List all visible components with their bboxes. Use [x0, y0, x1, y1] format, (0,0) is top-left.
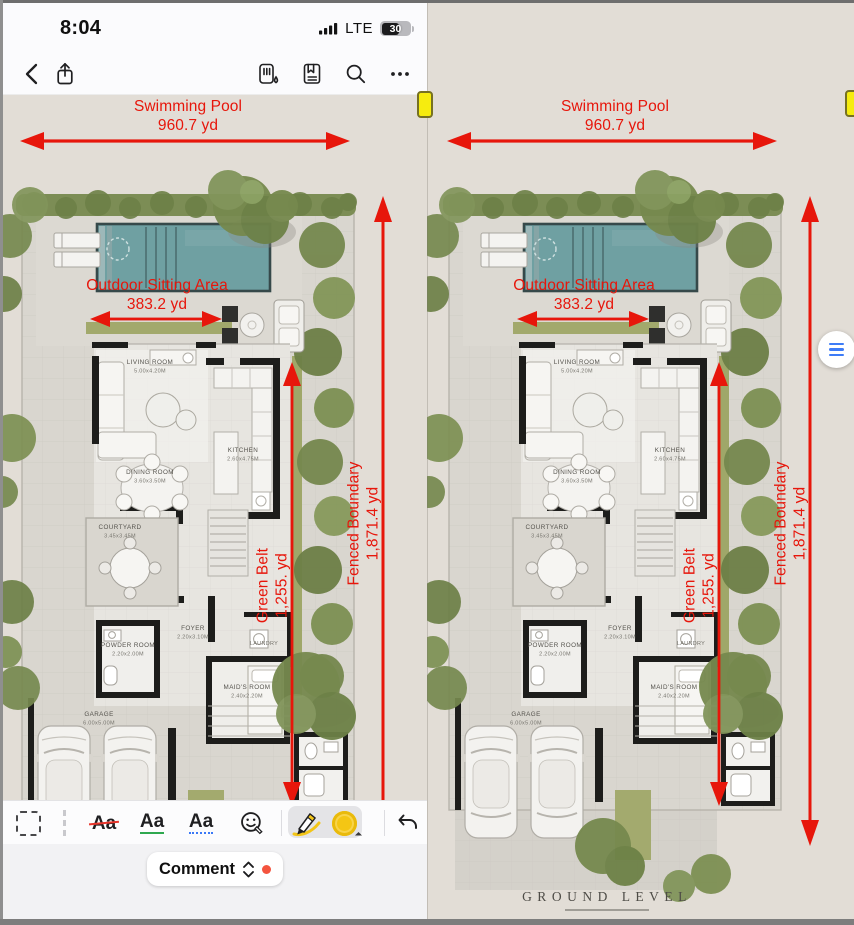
markup-toolbar: Aa Aa Aa	[0, 800, 427, 844]
menu-fab[interactable]	[818, 331, 854, 368]
annotation-value: 1,871.4 yd	[791, 429, 810, 619]
annotation-fenced-boundary: Fenced Boundary 1,871.4 yd	[773, 429, 810, 619]
text-underline-icon: Aa	[140, 812, 164, 834]
ruler-tool-button[interactable]	[46, 805, 82, 841]
text-dotted-icon: Aa	[189, 812, 213, 834]
annotation-outdoor-sitting[interactable]: Outdoor Sitting Area 383.2 yd	[17, 277, 297, 314]
hamburger-line	[829, 348, 844, 350]
annotation-label: Outdoor Sitting Area	[17, 277, 297, 296]
hamburger-line	[829, 354, 844, 356]
comment-bar-area: Comment	[0, 844, 427, 919]
annotation-swimming-pool[interactable]: Swimming Pool 960.7 yd	[38, 98, 338, 135]
comment-button[interactable]: Comment	[147, 852, 283, 886]
text-underline-button[interactable]: Aa	[134, 805, 170, 841]
share-icon	[55, 62, 75, 86]
annotation-value: 960.7 yd	[38, 117, 338, 136]
color-swatch-button[interactable]	[326, 805, 362, 841]
text-strike-icon: Aa	[92, 814, 116, 833]
annotation-outdoor-sitting: Outdoor Sitting Area 383.2 yd	[444, 277, 724, 314]
highlighter-tool-button[interactable]	[289, 805, 325, 841]
annotation-label: Green Belt	[682, 511, 701, 661]
selected-color-swatch	[332, 811, 357, 836]
bookmark-list-icon	[301, 62, 324, 86]
notification-dot	[262, 865, 271, 874]
annotation-fenced-boundary[interactable]: Fenced Boundary 1,871.4 yd	[346, 429, 383, 619]
bookmark-flag[interactable]	[417, 91, 433, 118]
nav-right-cluster	[253, 59, 415, 89]
plan-level-title: GROUND LEVEL	[487, 889, 727, 911]
annotation-green-belt: Green Belt 1,255. yd	[682, 511, 719, 661]
bookmark-flag[interactable]	[845, 90, 854, 117]
back-button[interactable]	[16, 59, 46, 89]
selection-tool-button[interactable]	[10, 805, 46, 841]
network-type-label: LTE	[345, 20, 373, 37]
search-button[interactable]	[341, 59, 371, 89]
battery-icon: 30	[380, 21, 411, 36]
markup-editor-pane: Swimming Pool 960.7 yd Outdoor Sitting A…	[0, 0, 427, 925]
ellipsis-icon	[389, 63, 411, 85]
annotation-value: 1,255. yd	[700, 511, 719, 661]
toolbar-divider	[281, 810, 282, 836]
annotation-list-button[interactable]	[297, 59, 327, 89]
toolbar-divider	[384, 810, 385, 836]
level-underline	[565, 909, 649, 911]
text-strikethrough-button[interactable]: Aa	[86, 805, 122, 841]
markup-tool-button[interactable]	[253, 59, 283, 89]
annotation-label: Swimming Pool	[465, 98, 765, 117]
nav-bar	[0, 52, 427, 95]
battery-percent: 30	[380, 21, 411, 36]
annotation-value: 383.2 yd	[444, 296, 724, 315]
annotation-label: Swimming Pool	[38, 98, 338, 117]
smiley-pencil-icon	[239, 810, 265, 836]
annotation-value: 1,255. yd	[273, 511, 292, 661]
frame-edge	[0, 919, 854, 925]
markup-document-icon	[257, 62, 280, 86]
emoji-annotation-button[interactable]	[234, 805, 270, 841]
annotation-value: 1,871.4 yd	[364, 429, 383, 619]
dashed-line-icon	[63, 810, 66, 836]
undo-icon	[395, 811, 420, 835]
frame-edge	[0, 0, 854, 3]
status-indicators: LTE 30	[319, 20, 411, 37]
annotation-label: Green Belt	[255, 511, 274, 661]
annotation-label: Outdoor Sitting Area	[444, 277, 724, 296]
level-label: GROUND LEVEL	[487, 889, 727, 905]
dashed-selection-icon	[16, 811, 41, 836]
undo-button[interactable]	[389, 805, 425, 841]
search-icon	[345, 63, 367, 85]
more-button[interactable]	[385, 59, 415, 89]
screenshot-root: Swimming Pool 960.7 yd Outdoor Sitting A…	[0, 0, 854, 925]
highlighter-pen-icon	[292, 810, 322, 837]
annotation-value: 383.2 yd	[17, 296, 297, 315]
annotation-value: 960.7 yd	[465, 117, 765, 136]
frame-edge	[0, 0, 3, 925]
pane-divider	[427, 0, 428, 925]
top-chrome: 8:04 LTE 30	[0, 0, 427, 95]
chevron-up-down-icon	[241, 860, 256, 879]
preview-pane: Swimming Pool 960.7 yd Outdoor Sitting A…	[427, 0, 854, 925]
battery-nub	[412, 26, 415, 32]
status-time: 8:04	[60, 17, 101, 40]
signal-icon	[319, 22, 338, 35]
chevron-left-icon	[25, 63, 38, 85]
share-button[interactable]	[50, 59, 80, 89]
hamburger-line	[829, 343, 844, 345]
annotation-swimming-pool: Swimming Pool 960.7 yd	[465, 98, 765, 135]
comment-label: Comment	[159, 860, 235, 879]
text-dotted-underline-button[interactable]: Aa	[183, 805, 219, 841]
annotation-green-belt[interactable]: Green Belt 1,255. yd	[255, 511, 292, 661]
annotation-label: Fenced Boundary	[773, 429, 792, 619]
annotation-label: Fenced Boundary	[346, 429, 365, 619]
swatch-menu-corner	[354, 831, 361, 838]
